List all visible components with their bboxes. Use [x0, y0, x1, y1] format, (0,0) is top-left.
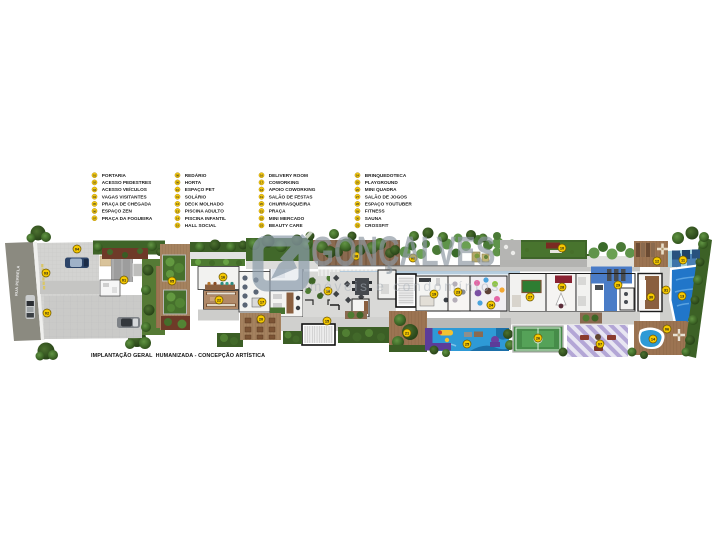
svg-text:02: 02: [93, 181, 96, 185]
svg-text:MINI MERCADO: MINI MERCADO: [269, 216, 305, 221]
svg-text:19: 19: [260, 195, 263, 199]
svg-text:DELIVERY ROOM: DELIVERY ROOM: [269, 173, 308, 178]
svg-text:ESPAÇO PET: ESPAÇO PET: [185, 187, 215, 192]
svg-text:20: 20: [259, 317, 263, 322]
svg-text:SAUNA: SAUNA: [365, 216, 382, 221]
svg-text:imóveis e condomínios: imóveis e condomínios: [304, 278, 501, 294]
svg-text:29: 29: [356, 209, 359, 213]
svg-text:HALL SOCIAL: HALL SOCIAL: [185, 223, 217, 228]
svg-text:PRAÇA DA FOGUEIRA: PRAÇA DA FOGUEIRA: [102, 216, 153, 221]
svg-text:BRINQUEDOTECA: BRINQUEDOTECA: [365, 173, 407, 178]
svg-text:17: 17: [260, 181, 263, 185]
svg-text:ACESSO PEDESTRES: ACESSO PEDESTRES: [102, 180, 152, 185]
svg-text:10: 10: [176, 188, 179, 192]
svg-text:SOLÁRIO: SOLÁRIO: [185, 193, 207, 199]
svg-text:15: 15: [176, 224, 179, 228]
svg-text:20: 20: [260, 202, 263, 206]
svg-text:07: 07: [598, 342, 602, 347]
svg-text:MINI QUADRA: MINI QUADRA: [365, 187, 397, 192]
svg-text:ESPAÇO YOUTUBER: ESPAÇO YOUTUBER: [365, 202, 413, 207]
svg-text:FITNESS: FITNESS: [365, 209, 385, 214]
svg-text:PRAÇA: PRAÇA: [269, 209, 286, 214]
svg-text:CHURRASQUEIRA: CHURRASQUEIRA: [269, 202, 311, 207]
svg-text:17: 17: [260, 300, 264, 305]
svg-text:PISCINA INFANTIL: PISCINA INFANTIL: [185, 216, 226, 221]
svg-text:28: 28: [356, 202, 359, 206]
svg-text:16: 16: [260, 173, 263, 177]
svg-text:12: 12: [176, 202, 179, 206]
svg-text:PISCINA ADULTO: PISCINA ADULTO: [185, 209, 224, 214]
svg-text:VAGAS VISITANTES: VAGAS VISITANTES: [102, 194, 147, 199]
svg-text:09: 09: [176, 181, 179, 185]
svg-text:07: 07: [93, 217, 96, 221]
svg-text:REDÁRIO: REDÁRIO: [185, 172, 207, 178]
svg-text:26: 26: [356, 188, 359, 192]
svg-text:01: 01: [93, 173, 96, 177]
svg-text:30: 30: [649, 295, 653, 300]
svg-text:21: 21: [260, 209, 263, 213]
svg-text:BEAUTY CARE: BEAUTY CARE: [269, 223, 303, 228]
svg-text:ACESSO VEÍCULOS: ACESSO VEÍCULOS: [102, 185, 147, 192]
svg-text:23: 23: [260, 224, 263, 228]
svg-text:ESPAÇO ZEN: ESPAÇO ZEN: [102, 209, 133, 214]
svg-text:27: 27: [528, 295, 532, 300]
svg-text:PLAYGROUND: PLAYGROUND: [365, 180, 399, 185]
svg-text:APOIO COWORKING: APOIO COWORKING: [269, 187, 316, 192]
svg-text:13: 13: [176, 209, 179, 213]
svg-text:05: 05: [93, 202, 96, 206]
svg-text:10: 10: [560, 246, 564, 251]
svg-text:18: 18: [260, 188, 263, 192]
svg-text:SALÃO DE FESTAS: SALÃO DE FESTAS: [269, 193, 313, 199]
svg-text:06: 06: [93, 209, 96, 213]
svg-text:COWORKING: COWORKING: [269, 180, 300, 185]
svg-text:27: 27: [356, 195, 359, 199]
svg-text:25: 25: [356, 181, 359, 185]
svg-text:PRAÇA DE CHEGADA: PRAÇA DE CHEGADA: [102, 202, 152, 207]
svg-text:22: 22: [260, 217, 263, 221]
svg-text:24: 24: [356, 173, 359, 177]
svg-text:PORTARIA: PORTARIA: [102, 173, 127, 178]
svg-text:30: 30: [356, 217, 359, 221]
svg-text:IMPLANTAÇÃO GERAL HUMANIZADA: IMPLANTAÇÃO GERAL HUMANIZADA - CONCEPÇÃO…: [91, 351, 265, 359]
svg-text:14: 14: [176, 217, 179, 221]
svg-text:HORTA: HORTA: [185, 180, 202, 185]
svg-text:04: 04: [93, 195, 96, 199]
svg-text:03: 03: [93, 188, 96, 192]
svg-text:SALÃO DE JOGOS: SALÃO DE JOGOS: [365, 193, 407, 199]
svg-text:DECK MOLHADO: DECK MOLHADO: [185, 202, 224, 207]
svg-text:GONÇALVES: GONÇALVES: [311, 227, 495, 274]
svg-text:08: 08: [176, 173, 179, 177]
